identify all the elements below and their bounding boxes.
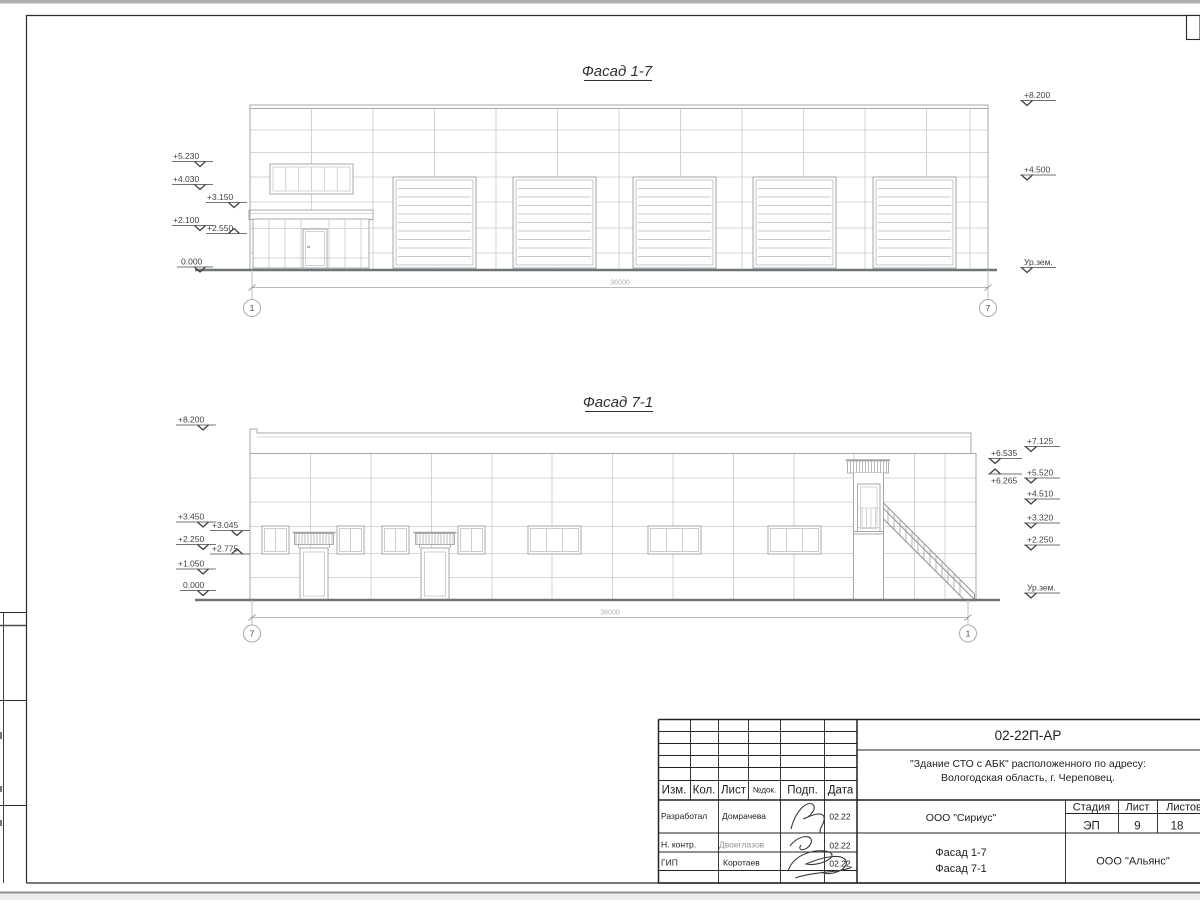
entry-door — [421, 548, 449, 600]
sheet-header: Лист — [1126, 802, 1150, 814]
dimension-value: 36000 — [600, 610, 620, 617]
elevation-mark-label: +3.320 — [1027, 513, 1054, 523]
drawing-sheet: Фасад 1-7 — [0, 0, 1200, 900]
elevation-mark-label: Ур.зем. — [1027, 583, 1056, 593]
elevation-mark: +6.265 — [988, 469, 1022, 486]
elevation-mark-label: +4.500 — [1024, 165, 1051, 175]
elevation-mark: +3.320 — [1024, 513, 1060, 529]
elevation-mark-label: +7.125 — [1027, 436, 1054, 446]
role-label: ГИП — [661, 858, 678, 868]
window-3pane — [528, 526, 581, 554]
elevation-mark-label: +3.450 — [178, 512, 205, 522]
screen-edge-bottom-line — [0, 892, 1200, 894]
sectional-door — [393, 177, 476, 268]
elevation-mark-label: +5.520 — [1027, 468, 1054, 478]
window-2pane — [337, 526, 364, 554]
col-header-izm: Изм. — [662, 785, 687, 797]
elevation-mark: Ур.зем. — [1020, 257, 1056, 273]
elevation-mark-label: +2.250 — [1027, 535, 1054, 545]
elevation-mark-label: +6.265 — [991, 476, 1018, 486]
elevation-mark: +5.520 — [1024, 468, 1060, 484]
screen-edge-top — [0, 0, 1200, 4]
side-stamp — [0, 612, 27, 883]
role-name: Домрачева — [722, 811, 766, 821]
sectional-doors — [393, 177, 956, 268]
elevation-mark: 0.000 — [180, 580, 216, 596]
elevation-mark: +4.500 — [1020, 165, 1056, 181]
window-3pane — [648, 526, 701, 554]
facade-title: Фасад 7-1 — [583, 394, 653, 411]
col-header-list: Лист — [721, 785, 747, 797]
stage-header: Стадия — [1073, 802, 1111, 814]
elevation-mark-label: 0.000 — [181, 257, 203, 267]
screen-edge-bottom — [0, 894, 1200, 900]
entrance-canopy — [249, 210, 373, 220]
door-canopy — [293, 533, 336, 549]
facade-1-7: Фасад 1-7 — [172, 63, 1056, 317]
elevation-mark: +1.050 — [176, 559, 216, 575]
stair-tower — [846, 460, 891, 600]
window-2pane — [458, 526, 485, 554]
col-header-kol: Кол. — [693, 785, 716, 797]
designer-org: ООО "Сириус" — [926, 812, 997, 824]
ribbon-window — [270, 164, 353, 194]
elevation-mark: +2.550 — [206, 223, 247, 234]
title-block: 02-22П-АР "Здание СТО с АБК" расположенн… — [659, 720, 1200, 884]
window-2pane — [262, 526, 289, 554]
window-3pane — [768, 526, 821, 554]
role-date: 02.22 — [829, 841, 851, 851]
role-label: Разработал — [661, 811, 707, 821]
elevation-mark: +2.250 — [1024, 535, 1060, 551]
elevation-mark: +2.250 — [176, 534, 216, 550]
customer-org: ООО "Альянс" — [1096, 856, 1170, 868]
elevation-mark: +4.510 — [1024, 489, 1060, 505]
col-header-data: Дата — [828, 785, 854, 797]
sheet-title-line1: Фасад 1-7 — [935, 847, 986, 859]
elevation-mark: +3.450 — [176, 512, 216, 528]
elevation-mark-label: +6.535 — [991, 448, 1018, 458]
elevation-mark-label: +3.045 — [212, 520, 239, 530]
sheets-value: 18 — [1171, 821, 1184, 833]
sheet-frame — [27, 16, 1200, 884]
project-name-line1: "Здание СТО с АБК" расположенного по адр… — [910, 758, 1146, 770]
elevation-mark: +7.125 — [1024, 436, 1060, 452]
elevation-mark: +2.775 — [210, 544, 250, 555]
elevation-mark-label: +2.550 — [207, 223, 234, 233]
role-date: 02.22 — [829, 859, 851, 869]
door-canopy — [414, 533, 457, 549]
axis-bubble-number: 7 — [250, 629, 255, 639]
role-name: Двоеглазов — [719, 840, 765, 850]
sectional-door — [633, 177, 716, 268]
elevation-mark: +6.535 — [988, 448, 1022, 464]
elevation-mark-label: +1.050 — [178, 559, 205, 569]
dimension-and-axes: 36000 1 7 — [244, 270, 997, 317]
entry-door — [300, 548, 328, 600]
elevation-mark-label: 0.000 — [183, 580, 205, 590]
elevation-mark-label: +4.030 — [173, 174, 200, 184]
col-header-podp: Подп. — [787, 785, 818, 797]
stage-value: ЭП — [1083, 821, 1100, 833]
elevation-mark-label: +4.510 — [1027, 489, 1054, 499]
elevation-mark: +3.045 — [210, 520, 250, 536]
dimension-value: 36000 — [610, 280, 630, 287]
sectional-door — [753, 177, 836, 268]
elevation-mark: +8.200 — [176, 415, 216, 431]
entry-door-2 — [414, 533, 457, 601]
drawing-canvas: Фасад 1-7 — [0, 0, 1200, 900]
project-name-line2: Вологодская область, г. Череповец. — [941, 772, 1115, 784]
elevation-mark-label: +2.250 — [178, 534, 205, 544]
axis-bubble-number: 7 — [986, 303, 991, 313]
corner-box — [1187, 16, 1200, 40]
facade-title: Фасад 1-7 — [582, 63, 653, 80]
dimension-and-axes: 36000 7 1 — [244, 600, 977, 642]
role-name: Коротаев — [723, 858, 760, 868]
facade-7-1: Фасад 7-1 — [176, 394, 1060, 642]
elevation-mark: +3.150 — [206, 192, 247, 208]
role-label: Н. контр. — [661, 840, 696, 850]
elevation-mark-label: +8.200 — [1024, 90, 1051, 100]
elevation-mark: Ур.зем. — [1024, 583, 1060, 599]
axis-bubble-number: 1 — [250, 303, 255, 313]
fire-escape-stair — [884, 503, 975, 600]
sheet-value: 9 — [1134, 821, 1140, 833]
stair-canopy — [848, 461, 889, 473]
sheet-title-line2: Фасад 7-1 — [935, 863, 986, 875]
sectional-door — [513, 177, 596, 268]
role-date: 02.22 — [829, 812, 851, 822]
entry-door-1 — [293, 533, 336, 601]
axis-bubble-number: 1 — [966, 629, 971, 639]
sheets-header: Листов — [1166, 802, 1200, 814]
elevation-mark-label: Ур.зем. — [1024, 257, 1053, 267]
elevation-mark: +4.030 — [172, 174, 213, 190]
elevation-mark-label: +5.230 — [173, 151, 200, 161]
window-2pane — [382, 526, 409, 554]
col-header-doc: №док. — [753, 786, 776, 795]
elevation-mark-label: +8.200 — [178, 415, 205, 425]
windows — [262, 526, 821, 554]
sectional-door — [873, 177, 956, 268]
elevation-mark: +5.230 — [172, 151, 213, 167]
elevation-mark: +8.200 — [1020, 90, 1056, 106]
entrance-storefront — [253, 219, 369, 268]
elevation-mark-label: +2.100 — [173, 215, 200, 225]
elevation-mark-label: +3.150 — [207, 192, 234, 202]
doc-number: 02-22П-АР — [995, 728, 1062, 743]
